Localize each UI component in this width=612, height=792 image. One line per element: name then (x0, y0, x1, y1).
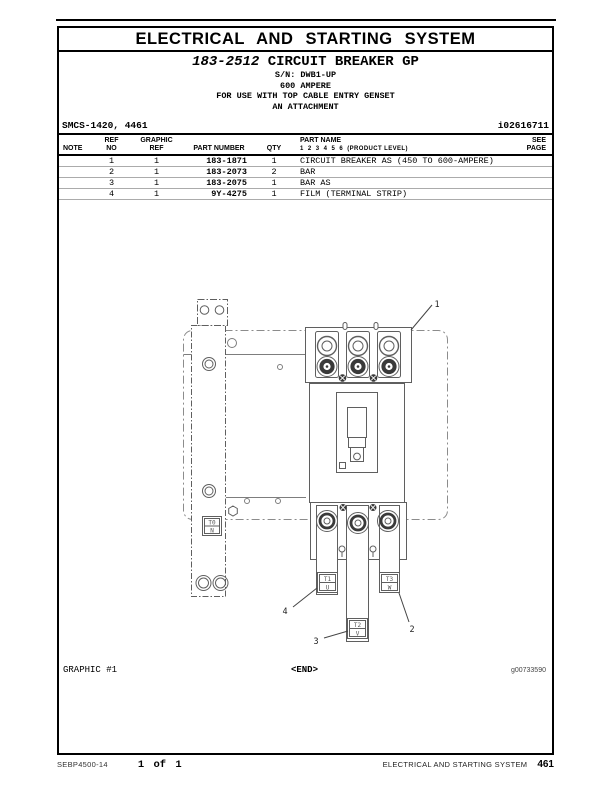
mounting-bar (192, 300, 238, 597)
publication-number: SEBP4500-14 (57, 760, 108, 769)
smcs-code: SMCS-1420, 4461 (62, 120, 148, 131)
table-row: 1 1 183-1871 1 CIRCUIT BREAKER AS (450 T… (59, 155, 552, 167)
cell-part-number: 183-2073 (179, 167, 259, 178)
t1-label: T1 (324, 576, 332, 583)
col-qty: QTY (259, 134, 289, 155)
cell-note (59, 155, 89, 167)
col-part-name: PART NAME 1 2 3 4 5 6 (PRODUCT LEVEL) (289, 134, 514, 155)
page-frame: ELECTRICAL AND STARTING SYSTEM 183-2512 … (57, 26, 554, 755)
col-part-number: PART NUMBER (179, 134, 259, 155)
callout-1: 1 (434, 300, 439, 310)
graphic-label: GRAPHIC #1 (63, 665, 224, 675)
callout-3: 3 (313, 637, 318, 647)
t2-label: T2 (354, 622, 362, 629)
cell-part-number: 183-1871 (179, 155, 259, 167)
cell-ref-no: 4 (89, 189, 134, 200)
cell-part-name: FILM (TERMINAL STRIP) (289, 189, 514, 200)
col-product-level: 1 2 3 4 5 6 (PRODUCT LEVEL) (300, 145, 514, 153)
footer-section: ELECTRICAL AND STARTING SYSTEM (383, 760, 528, 769)
cell-graphic-ref: 1 (134, 189, 179, 200)
breaker-body (310, 384, 405, 503)
catalog-page: { "banner": { "title": "ELECTRICAL AND S… (0, 0, 612, 792)
n-label: N (210, 528, 214, 535)
cell-part-name: CIRCUIT BREAKER AS (450 TO 600-AMPERE) (289, 155, 514, 167)
col-part-name-label: PART NAME (300, 137, 514, 145)
footer-left: SEBP4500-14 1 of 1 (57, 759, 182, 771)
col-see-page: SEE PAGE (514, 134, 552, 155)
page-indicator: 1 of 1 (138, 759, 182, 771)
cell-graphic-ref: 1 (134, 178, 179, 189)
cell-ref-no: 3 (89, 178, 134, 189)
t3-label: T3 (386, 576, 394, 583)
w-label: W (388, 585, 392, 592)
col-graphic-line1: GRAPHIC (134, 137, 179, 145)
col-note: NOTE (59, 134, 89, 155)
cell-note (59, 178, 89, 189)
end-marker: <END> (224, 665, 385, 675)
page-footer: SEBP4500-14 1 of 1 ELECTRICAL AND STARTI… (57, 759, 554, 771)
col-ref-line1: REF (89, 137, 134, 145)
attachment-note: AN ATTACHMENT (59, 102, 552, 113)
callout-4: 4 (282, 607, 287, 617)
cell-qty: 2 (259, 167, 289, 178)
serial-range: S/N: DWB1-UP (59, 70, 552, 81)
group-title: 183-2512 CIRCUIT BREAKER GP (59, 54, 552, 70)
cell-see-page (514, 155, 552, 167)
graphic-caption: GRAPHIC #1 <END> g00733590 (63, 665, 546, 675)
callout-2: 2 (409, 625, 414, 635)
table-header-row: NOTE REF NO GRAPHIC REF PART NUMBER QTY … (59, 134, 552, 155)
parts-diagram: T0 N (180, 290, 460, 655)
cell-part-number: 9Y-4275 (179, 189, 259, 200)
col-ref-no: REF NO (89, 134, 134, 155)
cell-qty: 1 (259, 155, 289, 167)
group-part-number: 183-2512 (192, 54, 259, 70)
top-rule (56, 19, 556, 21)
col-graphic-ref: GRAPHIC REF (134, 134, 179, 155)
table-row: 2 1 183-2073 2 BAR (59, 167, 552, 178)
col-see-line1: SEE (514, 137, 546, 145)
cell-part-name: BAR (289, 167, 514, 178)
table-row: 4 1 9Y-4275 1 FILM (TERMINAL STRIP) (59, 189, 552, 200)
usage-note: FOR USE WITH TOP CABLE ENTRY GENSET (59, 91, 552, 102)
graphic-id: g00733590 (385, 667, 546, 674)
meta-row: SMCS-1420, 4461 i02616711 (59, 120, 552, 131)
cell-part-number: 183-2075 (179, 178, 259, 189)
col-ref-line2: NO (89, 145, 134, 153)
cell-see-page (514, 189, 552, 200)
table-row: 3 1 183-2075 1 BAR AS (59, 178, 552, 189)
cell-ref-no: 1 (89, 155, 134, 167)
title-block: 183-2512 CIRCUIT BREAKER GP S/N: DWB1-UP… (59, 54, 552, 112)
col-see-line2: PAGE (514, 145, 546, 153)
cell-see-page (514, 178, 552, 189)
cell-graphic-ref: 1 (134, 155, 179, 167)
cell-graphic-ref: 1 (134, 167, 179, 178)
cell-part-name: BAR AS (289, 178, 514, 189)
cell-qty: 1 (259, 189, 289, 200)
group-name: CIRCUIT BREAKER GP (268, 54, 419, 70)
cell-see-page (514, 167, 552, 178)
rating: 600 AMPERE (59, 81, 552, 92)
cell-qty: 1 (259, 178, 289, 189)
doc-id: i02616711 (498, 120, 549, 131)
parts-table: NOTE REF NO GRAPHIC REF PART NUMBER QTY … (59, 133, 552, 200)
page-number: 461 (537, 759, 554, 770)
cell-note (59, 189, 89, 200)
cell-note (59, 167, 89, 178)
v-label: V (356, 631, 360, 638)
t0-label: T0 (208, 520, 216, 527)
cell-ref-no: 2 (89, 167, 134, 178)
system-banner: ELECTRICAL AND STARTING SYSTEM (59, 28, 552, 52)
col-graphic-line2: REF (134, 145, 179, 153)
u-label: U (326, 585, 330, 592)
footer-right: ELECTRICAL AND STARTING SYSTEM 461 (383, 759, 554, 770)
